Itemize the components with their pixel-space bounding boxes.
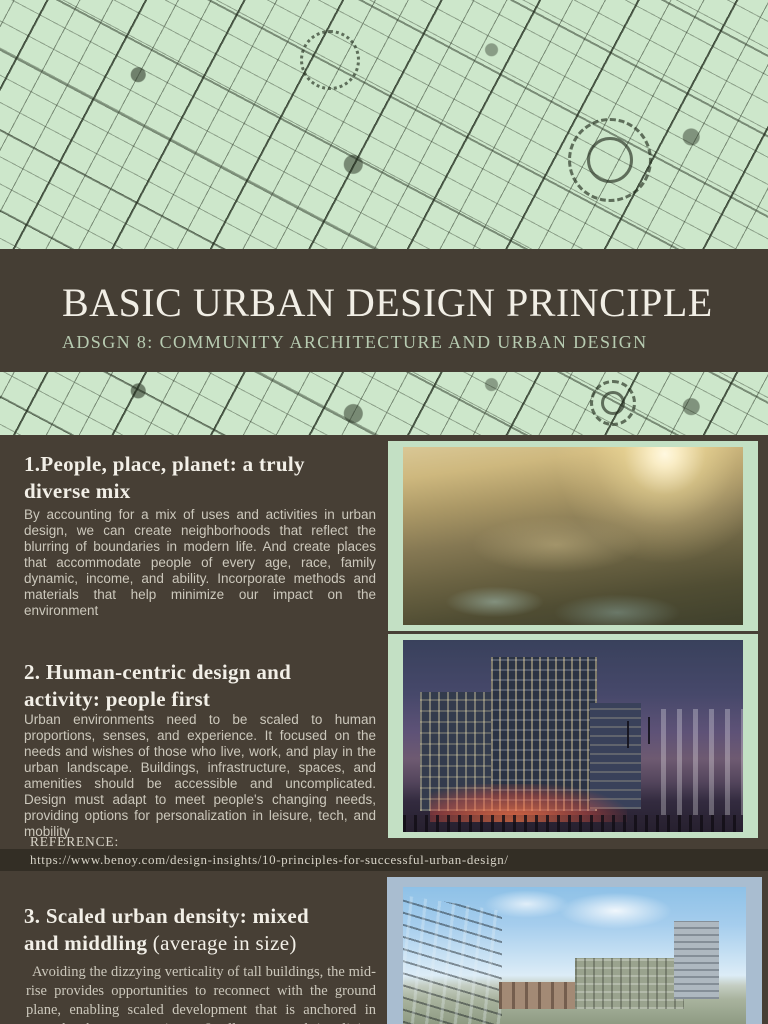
figure-panel-3: [387, 877, 762, 1024]
section-3-heading-normal: (average in size): [147, 931, 296, 955]
title-band: BASIC URBAN DESIGN PRINCIPLE ADSGN 8: CO…: [0, 249, 768, 372]
section-1-heading-bold: 1.People, place, planet: a truly diverse…: [24, 452, 305, 503]
section-2-body: Urban environments need to be scaled to …: [24, 712, 376, 840]
reference-url: https://www.benoy.com/design-insights/10…: [0, 852, 509, 868]
figure-panel-2: [388, 634, 758, 838]
flag-pole: [627, 721, 629, 748]
slide-page: BASIC URBAN DESIGN PRINCIPLE ADSGN 8: CO…: [0, 0, 768, 1024]
section-3-body: Avoiding the dizzying verticality of tal…: [26, 963, 376, 1024]
sketch-circle-detail: [300, 30, 360, 90]
flag-pole: [648, 717, 650, 744]
page-subtitle: ADSGN 8: COMMUNITY ARCHITECTURE AND URBA…: [62, 332, 768, 353]
page-title: BASIC URBAN DESIGN PRINCIPLE: [62, 249, 768, 325]
sunset-aerial-city-image: [403, 447, 743, 625]
section-1-heading: 1.People, place, planet: a truly diverse…: [24, 451, 346, 506]
daytime-district-image: [403, 887, 746, 1024]
reference-band: https://www.benoy.com/design-insights/10…: [0, 849, 768, 871]
section-1-body: By accounting for a mix of uses and acti…: [24, 507, 376, 619]
dusk-plaza-buildings-image: [403, 640, 743, 832]
section-3-heading: 3. Scaled urban density: mixed and middl…: [24, 903, 346, 958]
architectural-sketch-banner-top: [0, 0, 768, 249]
glass-building-left: [403, 894, 502, 1024]
tower-right: [674, 921, 719, 999]
sketch-gear-ring-inner: [601, 391, 625, 415]
section-2-heading: 2. Human-centric design and activity: pe…: [24, 659, 346, 714]
architectural-sketch-banner-middle: [0, 372, 768, 435]
midrise-apartments: [575, 958, 685, 1009]
figure-panel-1: [388, 441, 758, 631]
crowd-silhouettes: [403, 815, 743, 832]
reference-label: REFERENCE:: [30, 834, 119, 850]
section-2-heading-bold: 2. Human-centric design and activity: pe…: [24, 660, 291, 711]
content-area: 1.People, place, planet: a truly diverse…: [0, 435, 768, 1024]
stadium-silhouette: [661, 709, 743, 815]
sketch-gear-ring-inner: [587, 137, 633, 183]
